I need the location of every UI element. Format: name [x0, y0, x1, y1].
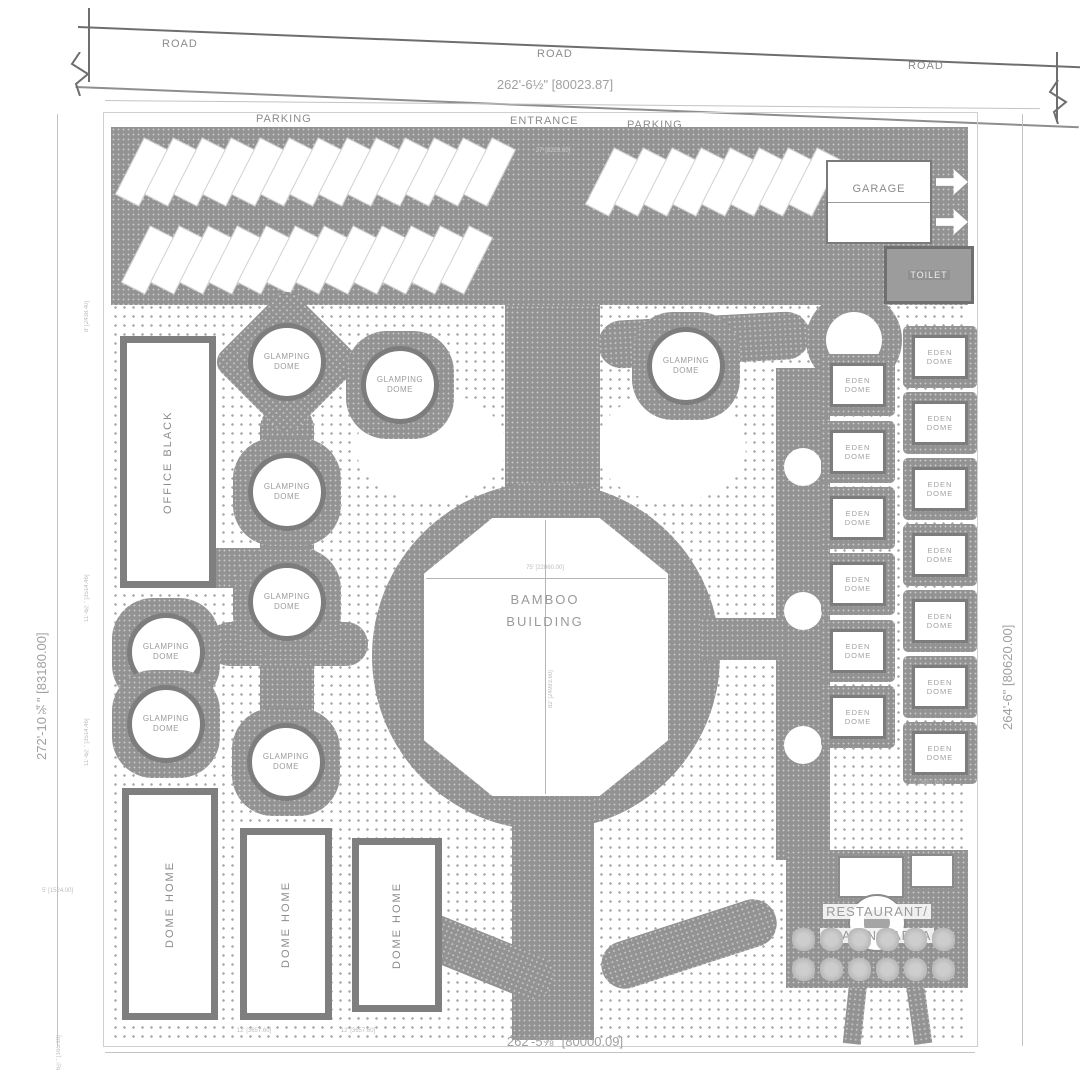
bamboo-height-dimension: 82' [24993.60]	[548, 618, 554, 708]
office-black-building: OFFICE BLACK	[120, 336, 216, 588]
glamping-dome-label: GLAMPING	[143, 714, 189, 724]
bush-row-2	[792, 958, 955, 981]
glamping-dome-label: GLAMPING	[663, 356, 709, 366]
eden-dome-label: EDEN	[928, 348, 953, 357]
dimension-line-right	[1022, 114, 1023, 1046]
bush-row-1-item	[876, 928, 899, 951]
corridor-loop-3	[784, 726, 822, 764]
corridor-loop-1	[784, 448, 822, 486]
bamboo-label-line1: BAMBOO	[465, 592, 625, 607]
bamboo-building	[424, 518, 668, 796]
small-dimension-left-lower: 5' [1524.00]	[42, 888, 73, 894]
bush-row-2-item	[876, 958, 899, 981]
eden-dome-7: EDENDOME	[912, 335, 968, 379]
dimension-right: 264'-6" [80620.00]	[1000, 430, 1015, 730]
garage-label: GARAGE	[852, 183, 905, 195]
eden-dome-10: EDENDOME	[912, 533, 968, 577]
eden-dome-label: EDEN	[846, 708, 871, 717]
corridor-loop-2	[784, 592, 822, 630]
small-dimension-left-bottom: 6½" [165.10]	[56, 1006, 62, 1070]
eden-bottom-dimension: 12' [3657.60]	[886, 780, 966, 786]
bush-row-1-item	[932, 928, 955, 951]
eden-dome-13: EDENDOME	[912, 731, 968, 775]
glamping-dome-7: GLAMPINGDOME	[127, 685, 205, 763]
bamboo-crosshair-h	[426, 578, 666, 579]
eden-dome-label: EDEN	[928, 612, 953, 621]
garage-divider	[828, 202, 930, 203]
glamping-dome-label: GLAMPING	[263, 752, 309, 762]
dome-home-label: DOME HOME	[129, 795, 211, 1013]
small-dimension-left-mid2: 11'-6⅞" [3514.46]	[84, 686, 90, 766]
dome-home-building-1: DOME HOME	[122, 788, 218, 1020]
break-symbol-right	[1046, 80, 1070, 124]
bamboo-label-line2: BUILDING	[465, 614, 625, 629]
eden-dome-4: EDENDOME	[830, 562, 886, 606]
path-bottom	[512, 788, 594, 1040]
bush-row-2-item	[904, 958, 927, 981]
glamping-dome-4: GLAMPINGDOME	[248, 453, 326, 531]
glamping-dome-3: GLAMPINGDOME	[647, 327, 725, 405]
dimension-bottom: 262'-5⅝" [80000.09]	[400, 1034, 730, 1049]
eden-dome-2: EDENDOME	[830, 430, 886, 474]
glamping-dome-label: GLAMPING	[264, 482, 310, 492]
restaurant-label-line1: RESTAURANT/	[823, 904, 931, 919]
eden-dome-3: EDENDOME	[830, 496, 886, 540]
bush-row-1-item	[792, 928, 815, 951]
eden-dome-1: EDENDOME	[830, 363, 886, 407]
path-bamboo-right	[700, 618, 786, 660]
restaurant-structure-2	[910, 854, 954, 888]
dome-home-label: DOME HOME	[247, 835, 325, 1013]
bush-row-2-item	[848, 958, 871, 981]
eden-dome-label: EDEN	[846, 642, 871, 651]
eden-dome-label: EDEN	[928, 414, 953, 423]
bamboo-crosshair-v	[545, 520, 546, 794]
toilet-building: TOILET	[884, 246, 974, 304]
dimension-line-bottom	[105, 1052, 975, 1053]
bush-row-1-item	[820, 928, 843, 951]
glamping-dome-1: GLAMPINGDOME	[248, 323, 326, 401]
eden-dome-9: EDENDOME	[912, 467, 968, 511]
eden-dome-label: EDEN	[928, 546, 953, 555]
glamping-dome-label: GLAMPING	[143, 642, 189, 652]
eden-dome-6: EDENDOME	[830, 695, 886, 739]
eden-dome-label: EDEN	[928, 480, 953, 489]
glamping-dome-label: GLAMPING	[377, 375, 423, 385]
parking-left-label: PARKING	[256, 113, 312, 125]
bush-row-1-item	[904, 928, 927, 951]
small-dimension-left-mid1: 11'-6⅞" [3514.46]	[84, 542, 90, 622]
bush-row-1-item	[848, 928, 871, 951]
bush-row-2-item	[820, 958, 843, 981]
dome-home-building-2: DOME HOME	[240, 828, 332, 1020]
path-entrance	[505, 300, 600, 505]
entrance-dimension: 27' [8229.60]	[508, 148, 598, 154]
eden-dome-5: EDENDOME	[830, 629, 886, 673]
eden-dome-label: EDEN	[846, 443, 871, 452]
dimension-left: 272'-10¾" [83180.00]	[34, 440, 49, 760]
road-label-3: ROAD	[908, 60, 944, 72]
bamboo-width-dimension: 75' [22860.00]	[470, 565, 620, 571]
eden-dome-label: EDEN	[846, 575, 871, 584]
entrance-label: ENTRANCE	[510, 115, 579, 127]
toilet-label: TOILET	[908, 270, 949, 280]
bush-row-2-item	[932, 958, 955, 981]
eden-dome-label: EDEN	[846, 376, 871, 385]
glamping-dome-label: GLAMPING	[264, 592, 310, 602]
dome-home-building-3: DOME HOME	[352, 838, 442, 1012]
bush-row-2-item	[792, 958, 815, 981]
break-symbol-left	[68, 52, 92, 96]
site-plan: ROAD ROAD ROAD 262'-6½" [80023.87] PARKI…	[0, 0, 1080, 1080]
glamping-dome-2: GLAMPINGDOME	[361, 346, 439, 424]
parking-stalls-right	[598, 150, 828, 214]
eden-dome-8: EDENDOME	[912, 401, 968, 445]
restaurant-structure-1	[838, 856, 904, 898]
dimension-top: 262'-6½" [80023.87]	[380, 77, 730, 92]
bush-row-1	[792, 928, 955, 951]
road-label-2: ROAD	[537, 48, 573, 60]
dimension-line-left	[57, 114, 58, 1046]
parking-stalls-row1	[128, 140, 503, 204]
dome-home-label: DOME HOME	[359, 845, 435, 1005]
glamping-dome-8: GLAMPINGDOME	[247, 723, 325, 801]
small-dimension-left-upper: 8' [2438.40]	[84, 260, 90, 332]
parking-right-label: PARKING	[627, 119, 683, 131]
eden-dome-label: EDEN	[846, 509, 871, 518]
eden-dome-12: EDENDOME	[912, 665, 968, 709]
road-label-1: ROAD	[162, 38, 198, 50]
eden-dome-11: EDENDOME	[912, 599, 968, 643]
eden-dome-label: EDEN	[928, 678, 953, 687]
office-black-label: OFFICE BLACK	[127, 343, 209, 581]
dome-home-dimension-2: 12' [3657.60]	[318, 1028, 398, 1034]
garage-building: GARAGE	[826, 160, 932, 244]
glamping-dome-label: GLAMPING	[264, 352, 310, 362]
parking-stalls-row2	[134, 228, 480, 292]
glamping-dome-5: GLAMPINGDOME	[248, 563, 326, 641]
eden-dome-label: EDEN	[928, 744, 953, 753]
dome-home-dimension-1: 12' [3657.60]	[214, 1028, 294, 1034]
